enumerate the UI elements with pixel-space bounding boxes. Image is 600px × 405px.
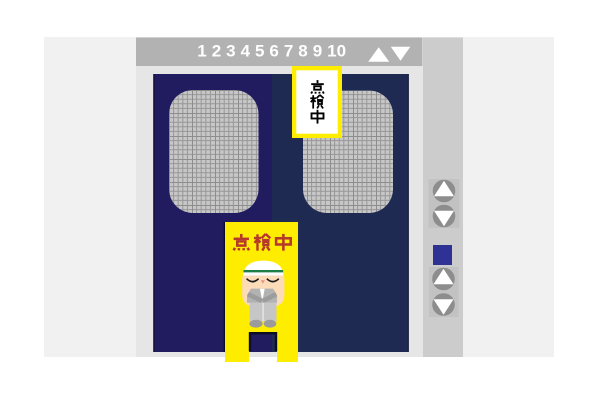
svg-text:1 2 3 4 5 6 7 8 9 10: 1 2 3 4 5 6 7 8 9 10 — [197, 42, 346, 61]
